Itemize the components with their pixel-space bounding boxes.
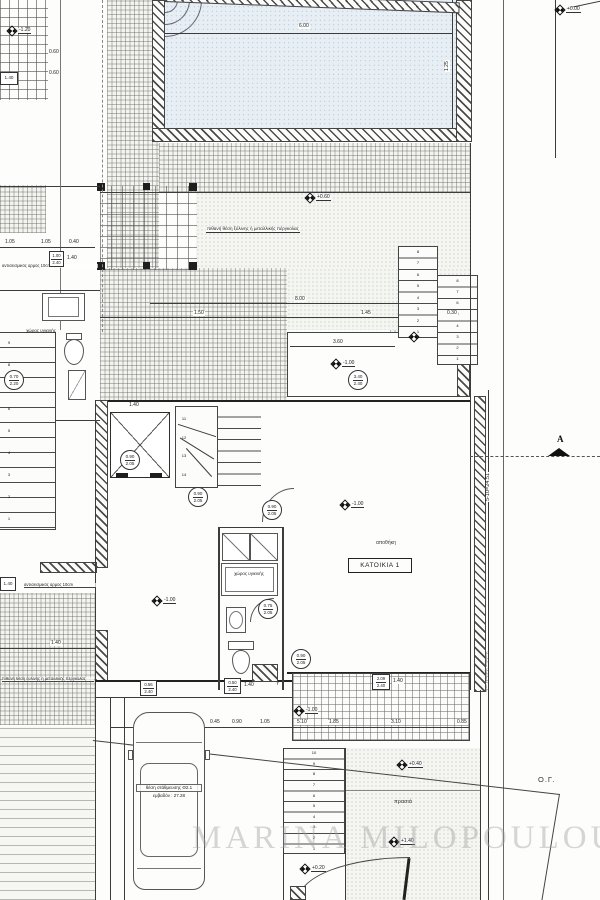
garden-wall-line <box>480 690 481 900</box>
pool-wall-bottom <box>152 128 472 142</box>
tag-value: 1.40 <box>5 76 14 81</box>
tag-annex-box: 0.562.40 <box>140 680 157 696</box>
level-value: -1.00 <box>305 708 318 714</box>
section-marker-icon <box>548 448 570 456</box>
stair-numbers-lower: 87654321 <box>437 275 478 365</box>
tag-grate-width: 1.40 <box>392 679 404 684</box>
list-value: 6 <box>417 273 419 277</box>
car-hood-line <box>136 742 202 743</box>
level-diamond-icon <box>330 358 341 369</box>
list-value: 9 <box>8 341 10 345</box>
left-shower <box>68 370 86 400</box>
tag-seismic-box: 1.40 <box>0 577 16 591</box>
pergola-note: πιθανή θέση ξύλινης ή μεταλλικής πέργκολ… <box>206 227 300 233</box>
room-dim-line <box>290 346 395 347</box>
left-dim-105a: 1.05 <box>4 240 16 245</box>
gate-door-arc <box>298 857 410 900</box>
left-toilet-tank <box>66 333 82 340</box>
list-value: 2 <box>8 495 10 499</box>
left-bath-top-wall <box>0 290 100 291</box>
level-room-right: -1.00 <box>332 360 355 368</box>
park-dim-2: 0.45 <box>209 720 221 725</box>
level-diamond-icon <box>299 863 310 874</box>
level-diamond-icon <box>554 4 565 15</box>
tag-mid-left: 1.002.40 <box>49 251 64 267</box>
pergola-grid <box>100 186 197 270</box>
door-sill-hatch <box>252 664 278 682</box>
list-value: 4 <box>8 451 10 455</box>
list-value: 6 <box>8 407 10 411</box>
level-diamond-icon <box>293 705 304 716</box>
storage-label: αποθήκη <box>376 541 396 547</box>
list-value: 6 <box>313 794 315 798</box>
level-top-right: +0.00 <box>556 6 581 14</box>
paving-below-pool <box>159 143 470 192</box>
pool-wall-left <box>152 0 165 142</box>
level-diamond-icon <box>151 595 162 606</box>
tag-grate-box: 2.092.40 <box>372 674 390 690</box>
list-value: 6 <box>456 301 458 305</box>
list-value: 3 <box>456 335 458 339</box>
list-value: 10 <box>312 751 316 755</box>
door-tag-hall-room2: 0.902.05 <box>291 649 311 669</box>
list-value: 8 <box>456 279 458 283</box>
list-value: 3 <box>8 473 10 477</box>
list-value: 2 <box>417 319 419 323</box>
pergola-post <box>97 183 105 191</box>
tag-bath-width: 1.40 <box>243 683 255 688</box>
list-value: 8 <box>8 363 10 367</box>
left-dim-040: 0.40 <box>68 240 80 245</box>
car-roof <box>140 763 198 857</box>
building-line-label: Ο.Γ. <box>538 776 555 785</box>
list-value: 7 <box>456 290 458 294</box>
pergola-post <box>143 262 150 269</box>
door-tag-elevator: 0.902.05 <box>120 450 140 470</box>
level-value: +0.40 <box>408 762 423 768</box>
sanitary-label-left: χώρος υγιεινής <box>22 328 60 334</box>
tag-top-left: 1.40 <box>0 72 18 85</box>
building-top-wall <box>95 400 470 402</box>
stair-numbers-upper: 87654321 <box>398 246 438 338</box>
level-value: -1.00 <box>342 361 355 367</box>
parking-stall-title: θέση στάθμευσης Θ2.1 <box>136 784 202 792</box>
wall-top-dim: 1.40 <box>128 403 140 408</box>
section-cut-line <box>470 456 600 457</box>
list-value: 2.05 <box>126 461 135 466</box>
closet-cell <box>222 533 250 561</box>
list-value: 2.40 <box>377 683 385 688</box>
garden-label: πρασιά <box>394 799 412 805</box>
elevator-jamb <box>116 473 128 478</box>
level-diamond-icon <box>304 192 315 203</box>
pool-side-dim: 1.25 <box>445 60 450 72</box>
axis-label-y: Y <box>276 682 279 688</box>
winder-numbers: 11121314 <box>177 410 191 484</box>
left-dim-line <box>60 0 61 330</box>
bath-wall-top <box>218 527 282 528</box>
left-dim-060a: 0.60 <box>48 50 60 55</box>
pool-inner-line <box>452 0 453 130</box>
annex-wall <box>40 562 97 573</box>
right-dimension-line <box>503 0 504 900</box>
pool-wall-right <box>456 0 472 142</box>
level-diamond-icon <box>6 25 17 36</box>
list-value: 8 <box>313 772 315 776</box>
list-value: 7 <box>417 261 419 265</box>
list-value: 4 <box>456 324 458 328</box>
terrace-dim-t2: 1.45 <box>360 311 372 316</box>
building-wall-line-left <box>95 400 96 900</box>
floor-plan-drawing: 6.00 1.25 +0.00 πιθανή θέση ξύλινης ή με… <box>0 0 600 900</box>
door-tag-hall-room: 0.902.05 <box>262 500 282 520</box>
section-letter: A <box>557 434 564 444</box>
level-value: -1.20 <box>18 28 31 34</box>
grate-dim-line <box>292 727 470 728</box>
parking-stall-area: εμβαδόν : 27.28 <box>142 793 196 799</box>
list-value: 3 <box>417 307 419 311</box>
left-stair-numbers: 987654321 <box>2 332 16 530</box>
neighbor-wall-strip <box>474 396 486 692</box>
list-value: 4 <box>313 815 315 819</box>
list-value: 2.05 <box>297 660 306 665</box>
level-grate: -1.00 <box>295 707 318 715</box>
grate-dim-3: 3.10 <box>390 720 402 725</box>
list-value: 1 <box>456 357 458 361</box>
level-diamond-icon <box>408 331 419 342</box>
toilet-bowl <box>232 650 250 674</box>
bath-wall-right <box>282 527 284 690</box>
bath-wall-left <box>218 527 220 690</box>
winder-stair-straight <box>217 406 261 488</box>
list-value: 2 <box>456 346 458 350</box>
boundary-note-label: όριο γραμμής δόμησης <box>483 651 488 692</box>
list-value: 8 <box>417 250 419 254</box>
grate-dim-4: 0.85 <box>456 720 468 725</box>
list-value: 2.40 <box>228 687 236 692</box>
elevator-jamb <box>150 473 162 478</box>
level-garden-upper: +0.40 <box>398 761 423 769</box>
entry-wall-hatch <box>290 886 306 900</box>
pergola-post <box>97 262 105 270</box>
pergola-post <box>143 183 150 190</box>
level-value: +0.60 <box>316 195 331 201</box>
level-hall: -1.00 <box>341 501 364 509</box>
terrace-dim-t1: 1.50 <box>193 311 205 316</box>
list-value: 5 <box>417 284 419 288</box>
building-wall-left-lower <box>95 630 108 682</box>
pool-inner-line <box>165 33 453 34</box>
list-value: 11 <box>182 417 186 421</box>
sink-basin <box>229 611 243 629</box>
boundary-line-top <box>555 0 556 158</box>
grate-dim-1: 5.10 <box>296 720 308 725</box>
list-value: 13 <box>182 454 186 458</box>
pool-width-dim: 6.00 <box>298 24 310 29</box>
park-dim-4: 1.05 <box>259 720 271 725</box>
sanitary-label-center: χώρος υγιεινής <box>227 571 271 577</box>
level-trellis: -1.20 <box>8 27 31 35</box>
closet-cell <box>250 533 278 561</box>
left-sink-basin <box>48 297 79 317</box>
car-mirror <box>205 750 210 760</box>
door-tag-room-right: 3.402.40 <box>348 370 368 390</box>
pergola-post <box>189 262 197 270</box>
level-terrace: +0.60 <box>306 194 331 202</box>
list-value: 4 <box>417 296 419 300</box>
elevator-shaft <box>110 412 170 478</box>
level-value: +0.00 <box>566 7 581 13</box>
tag-bath-box: 0.502.40 <box>224 678 241 694</box>
terrace-width-dim: 8.00 <box>294 297 306 302</box>
ramp-lower-left <box>0 727 96 900</box>
total-dimension-label: 5-10=24.51 <box>486 472 492 502</box>
list-value: 2.05 <box>194 498 203 503</box>
list-value: 2.20 <box>10 381 19 386</box>
paving-upper-left-small <box>0 185 46 233</box>
pergola-post <box>189 183 197 191</box>
list-value: 14 <box>182 473 186 477</box>
door-tag-bath-center: 0.752.05 <box>258 599 278 619</box>
list-value: 7 <box>313 783 315 787</box>
seismic-joint-note-bottom: αντισεισμικός αρμός 10cm <box>24 583 96 588</box>
list-value: 2.40 <box>354 381 363 386</box>
list-value: 2.40 <box>144 689 152 694</box>
level-room-left: -1.00 <box>153 597 176 605</box>
left-dim-105b: 1.05 <box>40 240 52 245</box>
annex-dim: 1.40 <box>50 641 62 646</box>
door-tag-bath-left: 0.702.20 <box>4 370 24 390</box>
paving-lower-left <box>0 593 96 725</box>
list-value: 2.40 <box>52 260 60 265</box>
building-wall-line-right <box>470 143 471 690</box>
pool-water <box>165 0 456 130</box>
level-diamond-icon <box>396 759 407 770</box>
trellis-top-left <box>0 0 48 100</box>
tag-mid-left-width: 1.40 <box>66 256 78 261</box>
list-value: 1 <box>8 517 10 521</box>
list-value: 5 <box>313 804 315 808</box>
left-terrace-edge <box>0 186 100 187</box>
level-diamond-icon <box>339 499 350 510</box>
level-value: -1.00 <box>351 502 364 508</box>
door-tag-stair-hall: 0.902.05 <box>188 487 208 507</box>
terrace-top-line <box>100 192 470 193</box>
residence-label: ΚΑΤΟΙΚΙΑ 1 <box>360 562 399 569</box>
parking-top-line <box>95 697 292 698</box>
list-value: 12 <box>182 436 186 440</box>
room-width-dim: 3.60 <box>332 340 344 345</box>
stair-bottom-marker <box>410 333 418 341</box>
watermark-text: MARINA MILOPOULOU <box>192 820 600 857</box>
tag-value: 1.40 <box>4 582 13 587</box>
car-mirror <box>128 750 133 760</box>
setback-dashed-line <box>102 0 103 332</box>
left-dim-060b: 0.60 <box>48 71 60 76</box>
level-value: +0.20 <box>311 866 326 872</box>
list-value: 5 <box>8 429 10 433</box>
park-dim-3: 0.90 <box>231 720 243 725</box>
garden-divider <box>346 790 480 791</box>
annex-dim-line <box>0 648 95 649</box>
building-wall-left <box>95 400 108 568</box>
list-value: 2.05 <box>264 610 273 615</box>
stair-tread-dim: 0.30 <box>446 311 458 316</box>
level-value: -1.00 <box>163 598 176 604</box>
level-entry: +0.20 <box>301 865 326 873</box>
pergola-note-2: πιθανή θέση ξύλινης ή μεταλλικής πέργκολ… <box>2 677 94 682</box>
toilet-tank <box>228 641 254 650</box>
list-value: 2.05 <box>268 511 277 516</box>
left-dim-row <box>0 247 95 248</box>
paving-mid-left <box>100 268 287 402</box>
residence-label-box: ΚΑΤΟΙΚΙΑ 1 <box>348 558 412 573</box>
grate-dim-2: 1.85 <box>328 720 340 725</box>
left-toilet-bowl <box>64 339 84 365</box>
car-rear-line <box>137 868 201 869</box>
